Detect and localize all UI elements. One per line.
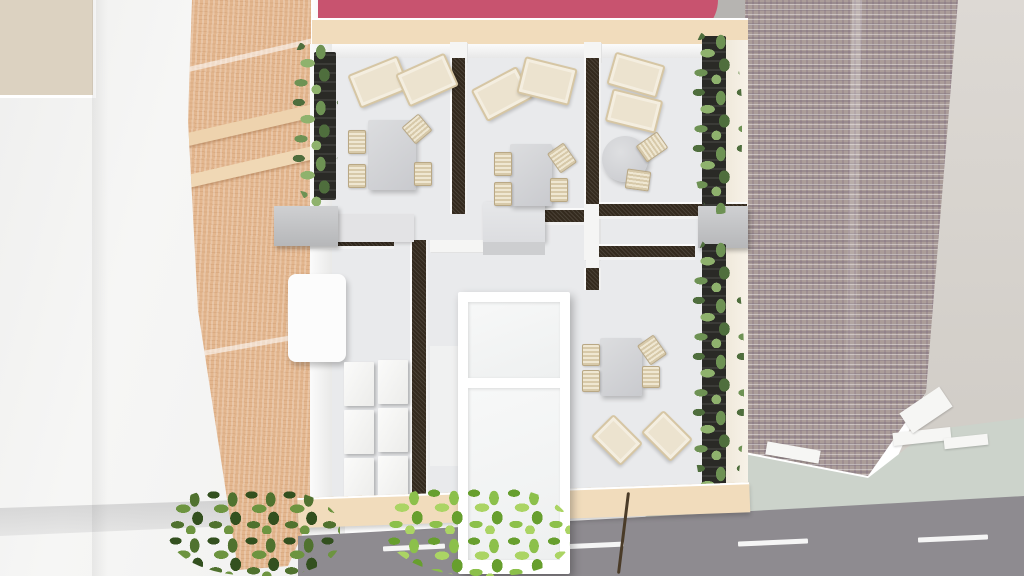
site-plan-render	[0, 0, 1024, 576]
roof-crease	[92, 0, 108, 576]
chair	[582, 344, 600, 366]
atrium-skylight-pane	[468, 302, 560, 378]
chair	[348, 164, 366, 188]
wall-hedge-east-upper	[690, 28, 742, 214]
floor-patch	[430, 346, 460, 466]
shelf-box	[344, 362, 374, 406]
chair	[550, 178, 568, 202]
partition-wall-white	[430, 240, 484, 252]
wall-hedge-west	[290, 38, 338, 206]
street-tree-dark	[168, 488, 340, 576]
shelf-box	[378, 408, 408, 452]
shelf-box	[378, 360, 408, 404]
interior-north-wall-face	[330, 44, 728, 58]
neighbor-roof-beige-patch	[0, 0, 96, 98]
dining-table	[510, 144, 552, 206]
partition-wall	[586, 58, 599, 208]
chair	[414, 162, 432, 186]
service-counter-top	[483, 202, 545, 242]
chair	[494, 182, 512, 206]
tall-partition-wall	[412, 240, 426, 518]
dining-table	[600, 338, 642, 396]
corner-utility-box	[274, 206, 338, 246]
chair	[494, 152, 512, 176]
chair	[582, 370, 600, 392]
wall-hedge-east-lower	[690, 236, 744, 512]
street-tree-bright	[386, 486, 570, 576]
chair	[625, 168, 652, 191]
chair	[348, 130, 366, 154]
chair	[642, 366, 660, 388]
storage-cabinet	[288, 274, 346, 362]
brick-ridge-highlight	[844, 0, 862, 470]
partition-wall	[545, 210, 589, 222]
shelf-box	[344, 410, 374, 454]
partition-wall	[586, 268, 599, 290]
service-counter-front	[483, 242, 545, 255]
partition-wall	[599, 246, 695, 257]
